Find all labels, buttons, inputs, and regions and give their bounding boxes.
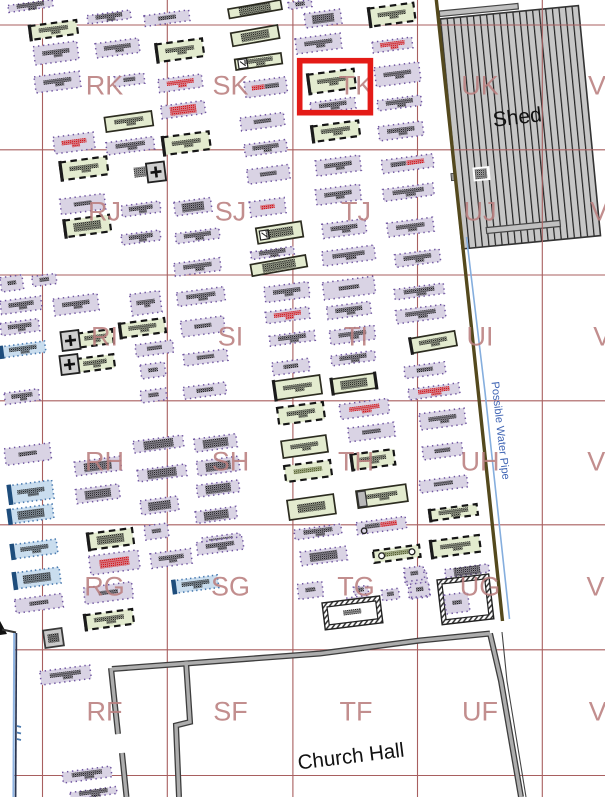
svg-text:RI: RI xyxy=(91,322,118,352)
svg-text:VJ: VJ xyxy=(590,197,605,227)
svg-text:SF: SF xyxy=(213,697,248,727)
svg-text:UH: UH xyxy=(461,447,500,477)
svg-text:RK: RK xyxy=(86,71,124,101)
svg-text:SK: SK xyxy=(212,71,248,101)
svg-text:VF: VF xyxy=(589,697,605,727)
svg-text:RJ: RJ xyxy=(88,197,121,227)
svg-text:SI: SI xyxy=(218,322,244,352)
svg-text:RF: RF xyxy=(87,697,123,727)
svg-text:RG: RG xyxy=(84,572,125,602)
svg-text:UI: UI xyxy=(467,322,494,352)
svg-text:UK: UK xyxy=(461,71,499,101)
svg-text:TF: TF xyxy=(340,697,373,727)
svg-text:VG: VG xyxy=(586,572,605,602)
svg-text:VK: VK xyxy=(588,71,605,101)
svg-text:SH: SH xyxy=(212,447,250,477)
svg-text:RH: RH xyxy=(85,447,124,477)
svg-text:SG: SG xyxy=(211,572,250,602)
svg-text:TG: TG xyxy=(337,572,375,602)
svg-text:SJ: SJ xyxy=(215,197,247,227)
svg-text:TI: TI xyxy=(344,322,368,352)
svg-text:TH: TH xyxy=(338,447,374,477)
svg-text:UF: UF xyxy=(462,697,498,727)
svg-text:VH: VH xyxy=(587,447,605,477)
svg-text:VI: VI xyxy=(593,322,605,352)
svg-text:UJ: UJ xyxy=(464,197,497,227)
svg-text:UG: UG xyxy=(460,572,501,602)
svg-text:TJ: TJ xyxy=(341,197,371,227)
